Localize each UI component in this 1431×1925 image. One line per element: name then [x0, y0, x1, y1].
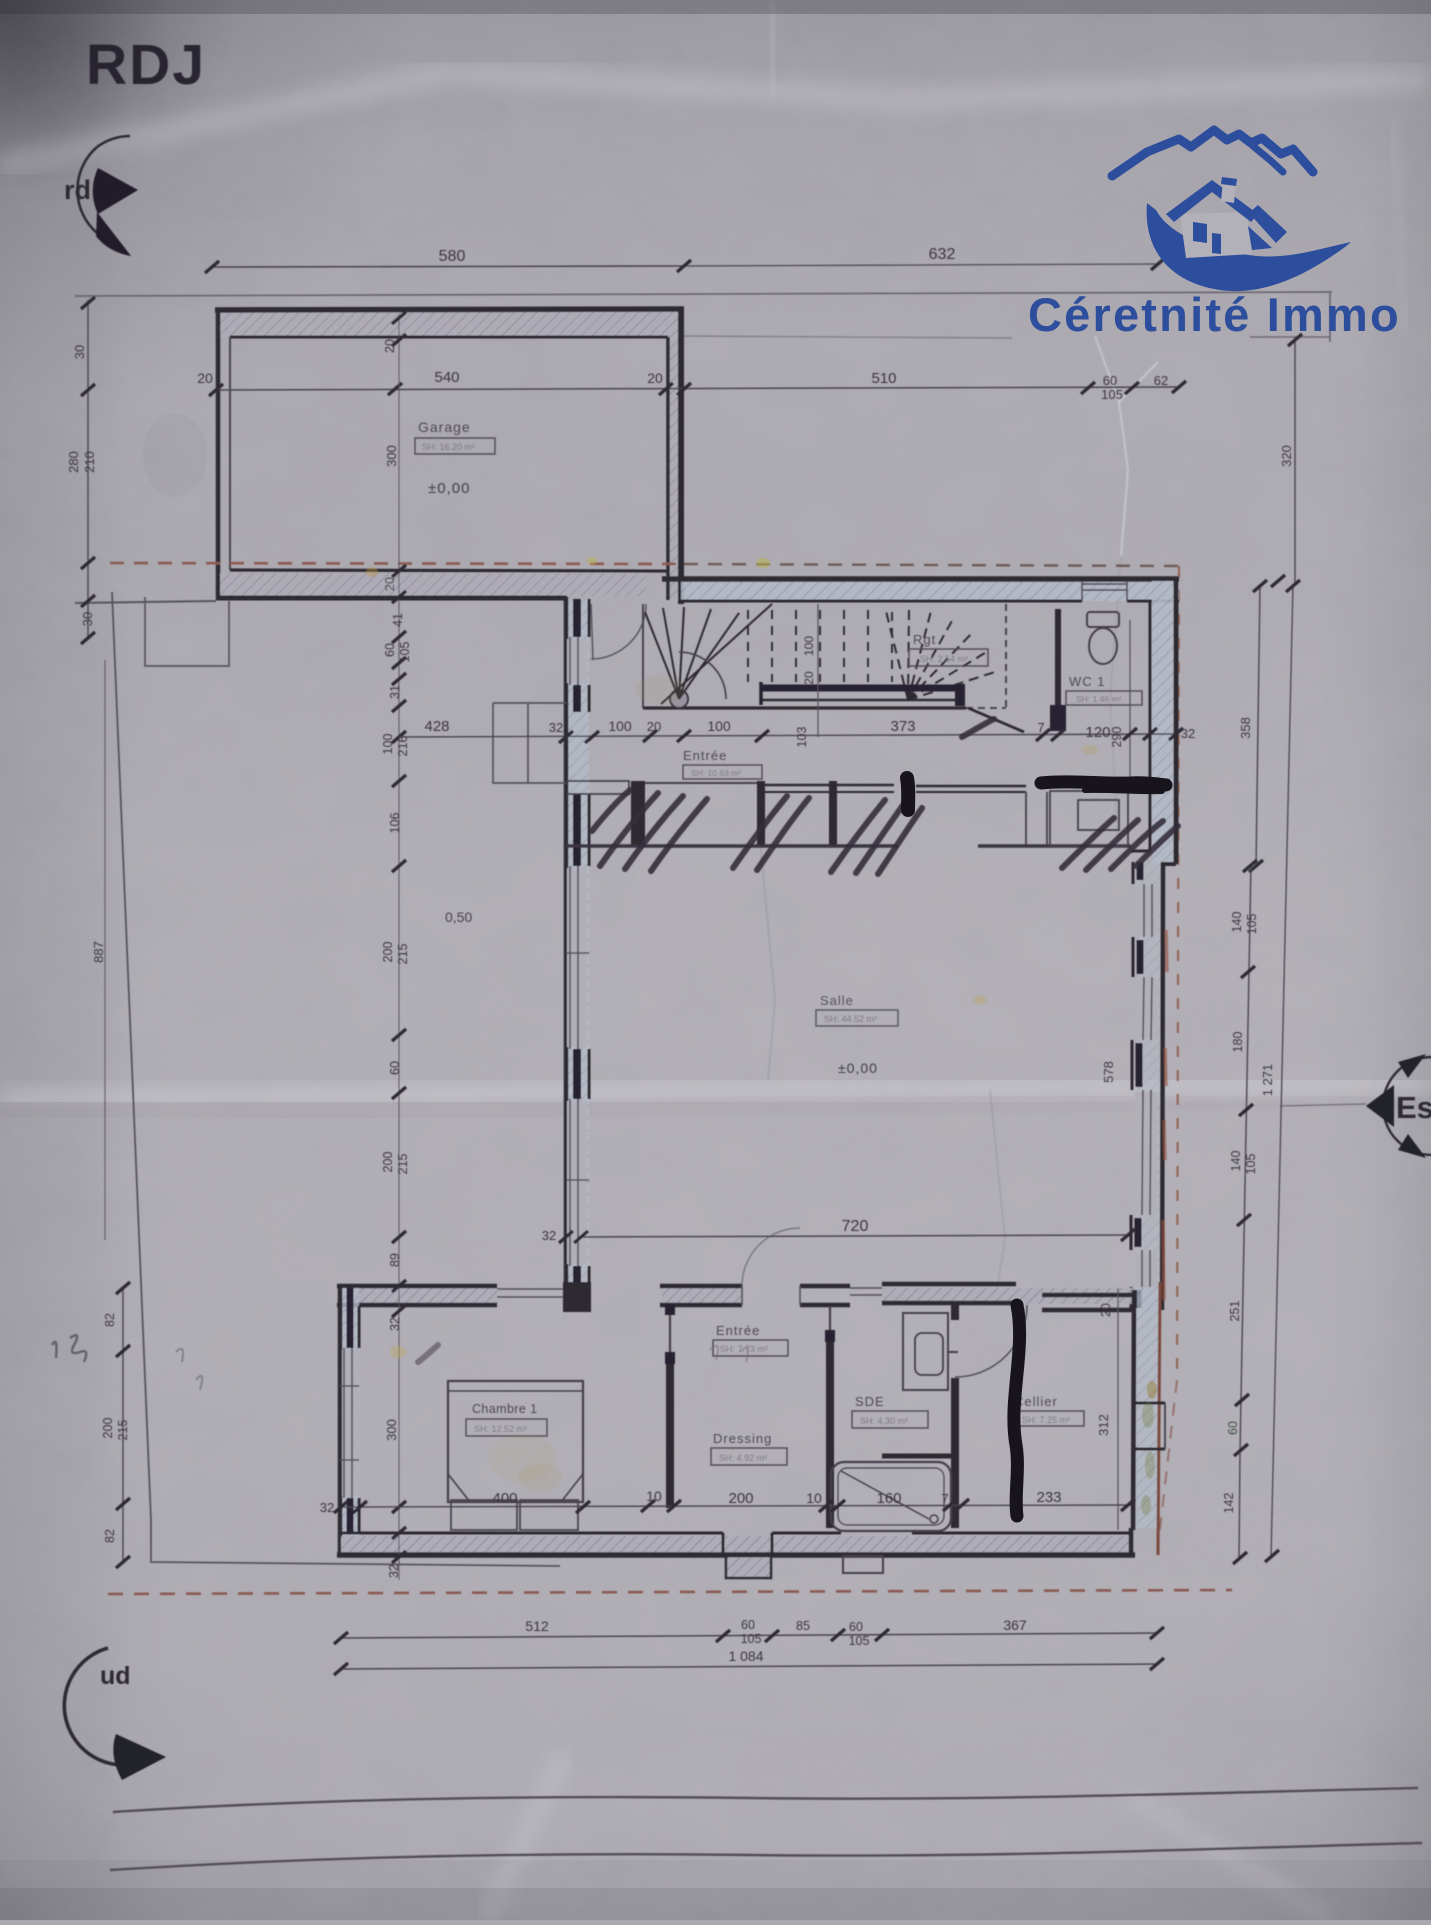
svg-text:20: 20: [197, 370, 213, 386]
svg-text:180: 180: [1231, 1032, 1245, 1053]
svg-text:20: 20: [647, 370, 663, 386]
svg-text:Rgt: Rgt: [913, 632, 936, 647]
svg-text:60: 60: [383, 643, 397, 657]
svg-text:60: 60: [1226, 1421, 1240, 1435]
svg-text:32: 32: [388, 1317, 402, 1331]
svg-text:Entrée: Entrée: [683, 748, 727, 763]
svg-text:SH: 1.46 m²: SH: 1.46 m²: [1076, 694, 1122, 704]
svg-text:30: 30: [72, 345, 87, 359]
svg-text:1 084: 1 084: [728, 1648, 763, 1664]
svg-text:SH: 16.20 m²: SH: 16.20 m²: [422, 442, 475, 452]
svg-text:SH: 4.92 m²: SH: 4.92 m²: [719, 1453, 767, 1463]
svg-text:32: 32: [542, 1228, 556, 1243]
svg-text:32: 32: [387, 1564, 401, 1578]
svg-text:SDE: SDE: [855, 1394, 885, 1409]
svg-text:20: 20: [383, 577, 397, 591]
svg-text:7: 7: [1037, 720, 1044, 735]
svg-text:580: 580: [439, 248, 466, 265]
svg-text:41: 41: [391, 613, 405, 627]
svg-text:±0,00: ±0,00: [428, 480, 470, 497]
svg-text:SH: 44.52 m²: SH: 44.52 m²: [824, 1014, 877, 1024]
svg-text:578: 578: [1101, 1061, 1116, 1083]
svg-text:85: 85: [796, 1619, 810, 1633]
svg-text:SH: 12.52 m²: SH: 12.52 m²: [474, 1424, 527, 1434]
svg-text:120: 120: [1085, 724, 1110, 741]
svg-text:SH: 2.54 m²: SH: 2.54 m²: [920, 654, 968, 664]
svg-text:200: 200: [381, 1152, 395, 1173]
svg-text:540: 540: [434, 369, 459, 386]
svg-text:31: 31: [388, 685, 402, 699]
svg-text:Garage: Garage: [418, 419, 471, 435]
svg-text:200: 200: [728, 1490, 753, 1507]
svg-text:720: 720: [842, 1218, 869, 1235]
svg-text:358: 358: [1238, 717, 1253, 739]
svg-text:82: 82: [103, 1313, 117, 1327]
svg-text:140: 140: [1229, 1151, 1243, 1172]
svg-text:300: 300: [384, 445, 399, 467]
svg-text:20: 20: [802, 671, 816, 685]
svg-text:0,50: 0,50: [445, 909, 472, 925]
svg-text:Est: Est: [1396, 1090, 1431, 1125]
svg-text:89: 89: [388, 1253, 402, 1267]
svg-text:10: 10: [646, 1488, 662, 1504]
svg-text:216: 216: [396, 736, 410, 757]
svg-text:10: 10: [806, 1490, 822, 1506]
svg-text:887: 887: [91, 941, 106, 963]
svg-text:200: 200: [381, 942, 395, 963]
svg-text:428: 428: [424, 718, 449, 735]
svg-text:142: 142: [1222, 1493, 1236, 1514]
svg-text:200: 200: [101, 1418, 115, 1439]
svg-text:140: 140: [1230, 912, 1244, 933]
svg-text:320: 320: [1279, 445, 1294, 467]
svg-text:312: 312: [1096, 1414, 1111, 1436]
svg-text:215: 215: [396, 944, 410, 965]
svg-text:60: 60: [849, 1620, 863, 1634]
svg-text:367: 367: [1003, 1617, 1027, 1633]
svg-text:105: 105: [398, 642, 412, 663]
svg-text:20: 20: [1099, 1303, 1113, 1317]
svg-text:105: 105: [1101, 387, 1123, 402]
svg-text:100: 100: [608, 718, 632, 734]
svg-text:106: 106: [388, 813, 402, 834]
svg-text:400: 400: [492, 1490, 517, 1507]
svg-text:Entrée: Entrée: [716, 1323, 760, 1338]
svg-text:105: 105: [741, 1632, 762, 1646]
svg-text:512: 512: [525, 1618, 549, 1634]
svg-text:233: 233: [1036, 1489, 1061, 1506]
svg-text:100: 100: [381, 734, 395, 755]
svg-text:20: 20: [383, 339, 397, 353]
svg-text:30: 30: [80, 612, 95, 626]
svg-text:105: 105: [1244, 1154, 1258, 1175]
svg-text:32: 32: [320, 1500, 334, 1515]
svg-text:100: 100: [707, 718, 731, 734]
svg-text:100: 100: [802, 636, 816, 656]
svg-text:SH: 10.63 m²: SH: 10.63 m²: [691, 768, 741, 778]
svg-text:632: 632: [929, 246, 956, 263]
svg-text:Chambre 1: Chambre 1: [472, 1402, 537, 1416]
svg-text:280: 280: [66, 451, 81, 473]
svg-text:32: 32: [549, 720, 563, 735]
svg-text:210: 210: [82, 451, 97, 473]
svg-text:Céretnité Immo: Céretnité Immo: [1028, 288, 1401, 341]
svg-text:SH: 4.30 m²: SH: 4.30 m²: [860, 1416, 908, 1426]
svg-text:±0,00: ±0,00: [838, 1060, 878, 1076]
svg-text:105: 105: [1245, 914, 1259, 935]
svg-text:60: 60: [741, 1618, 755, 1632]
svg-text:62: 62: [1154, 373, 1168, 388]
svg-text:215: 215: [116, 1420, 130, 1441]
svg-text:251: 251: [1228, 1301, 1242, 1322]
svg-text:1 271: 1 271: [1260, 1064, 1275, 1097]
svg-text:215: 215: [396, 1154, 410, 1175]
svg-text:510: 510: [871, 370, 896, 387]
svg-text:105: 105: [849, 1634, 870, 1648]
svg-text:ud: ud: [100, 1662, 131, 1690]
svg-text:82: 82: [103, 1529, 117, 1543]
svg-text:Dressing: Dressing: [713, 1431, 772, 1446]
svg-text:Salle: Salle: [820, 993, 854, 1008]
svg-text:32: 32: [1181, 726, 1195, 741]
svg-text:60: 60: [1103, 373, 1117, 388]
svg-text:300: 300: [384, 1419, 399, 1441]
svg-text:7: 7: [941, 1491, 948, 1506]
svg-text:103: 103: [795, 727, 809, 748]
svg-text:WC 1: WC 1: [1069, 674, 1106, 689]
svg-text:60: 60: [388, 1061, 402, 1075]
svg-text:373: 373: [890, 718, 915, 735]
svg-text:290: 290: [1110, 727, 1124, 748]
svg-text:160: 160: [876, 1490, 901, 1507]
svg-text:SH: 7.25 m²: SH: 7.25 m²: [1022, 1415, 1070, 1425]
svg-text:20: 20: [647, 719, 661, 734]
